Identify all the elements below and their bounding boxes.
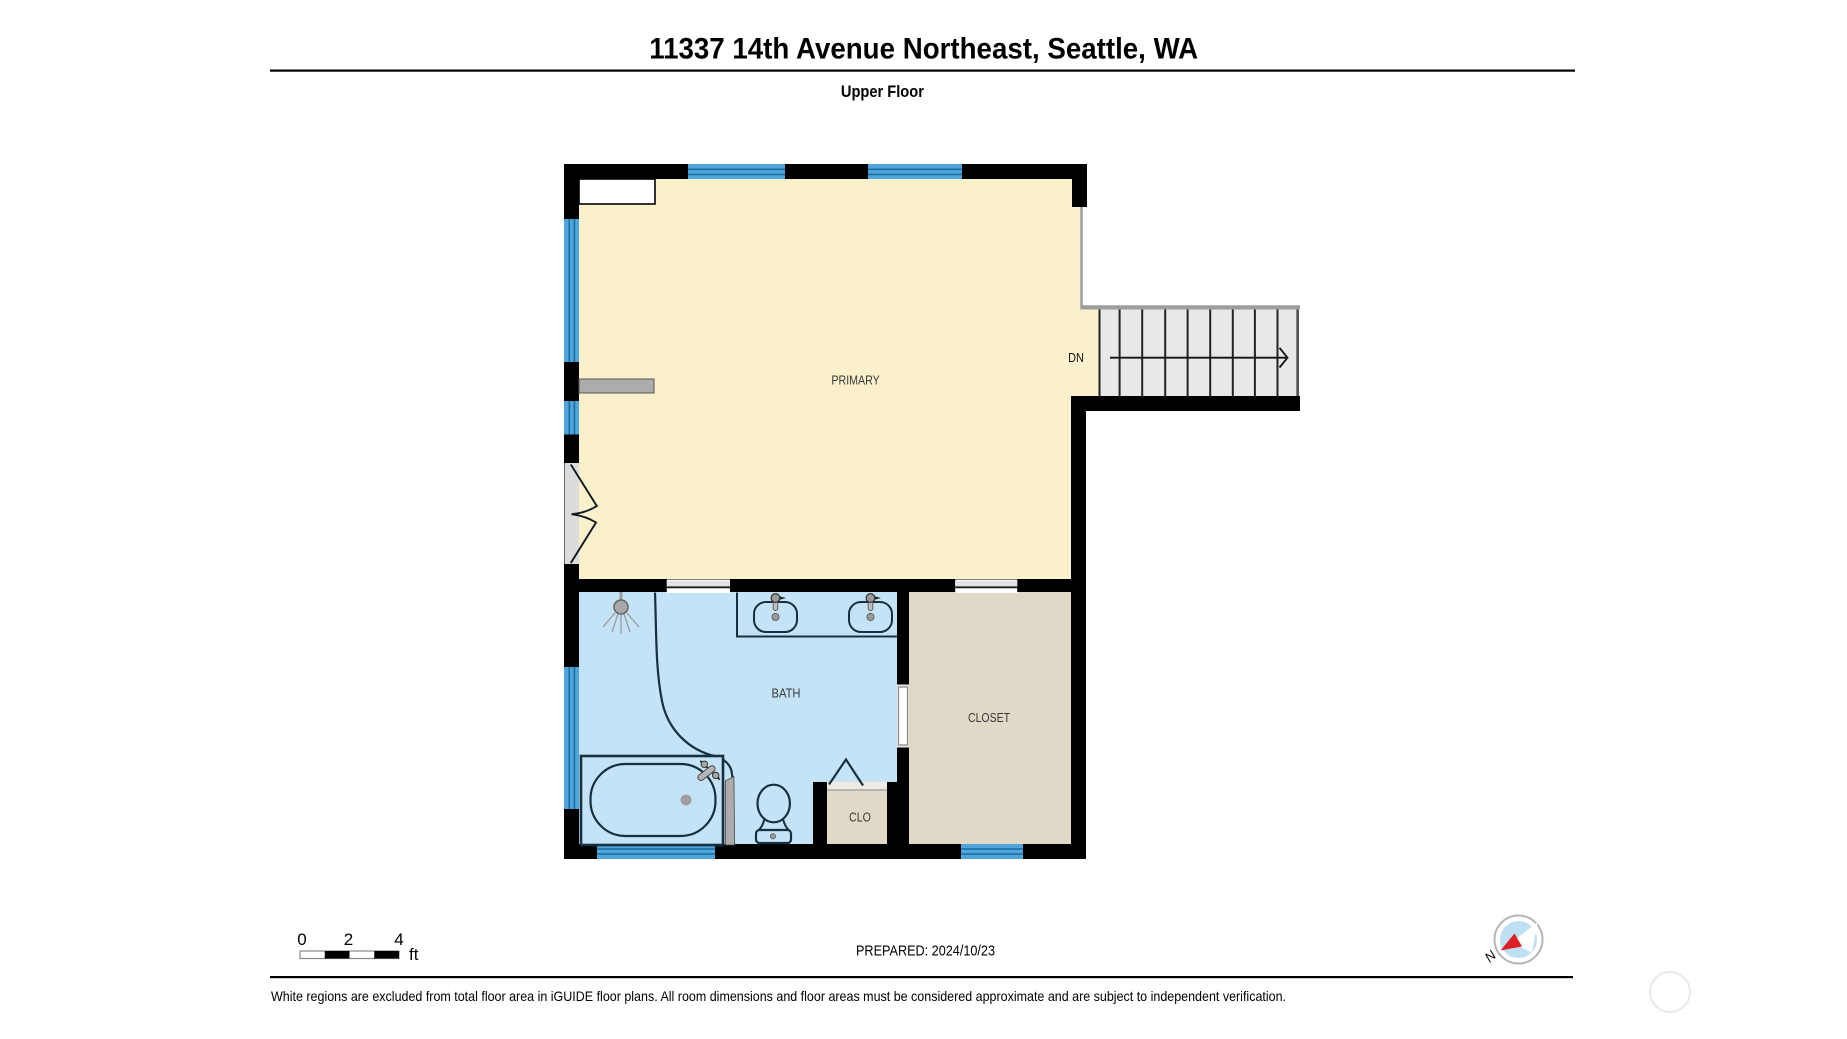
svg-text:BATH: BATH [772,686,801,701]
svg-text:2: 2 [344,930,353,949]
svg-text:DN: DN [1068,350,1084,365]
svg-text:0: 0 [297,930,306,949]
svg-text:4: 4 [394,930,403,949]
svg-text:White regions are excluded fro: White regions are excluded from total fl… [271,989,1286,1004]
svg-text:Upper Floor: Upper Floor [841,82,924,101]
svg-text:PREPARED: 2024/10/23: PREPARED: 2024/10/23 [856,944,995,960]
svg-text:CLOSET: CLOSET [968,710,1010,725]
svg-text:CLO: CLO [849,810,871,825]
svg-text:PRIMARY: PRIMARY [831,373,880,388]
svg-text:ft: ft [409,945,419,964]
svg-text:11337 14th Avenue Northeast, S: 11337 14th Avenue Northeast, Seattle, WA [649,33,1198,66]
